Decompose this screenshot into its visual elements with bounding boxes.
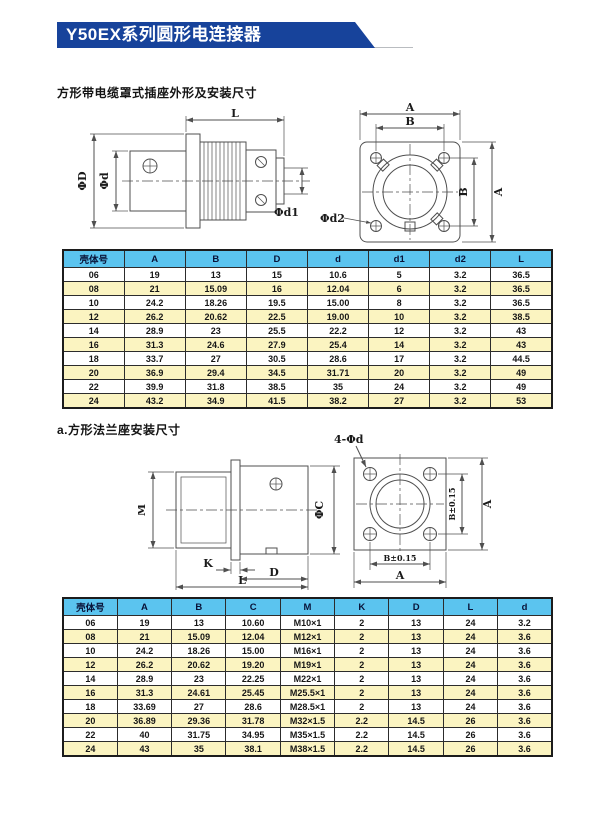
- table-cell: 33.69: [117, 700, 171, 714]
- table-cell: 08: [63, 630, 117, 644]
- table-cell: 3.6: [498, 644, 552, 658]
- table-cell: 2.2: [335, 728, 389, 742]
- table-cell: 3.6: [498, 728, 552, 742]
- table-cell: 3.2: [498, 616, 552, 630]
- table-cell: 44.5: [491, 352, 552, 366]
- dim-label-L: L: [231, 107, 239, 120]
- column-header: d2: [430, 250, 491, 268]
- table-cell: 6: [369, 282, 430, 296]
- table-cell: 36.5: [491, 268, 552, 282]
- table-row: 2443.234.941.538.2273.253: [63, 394, 552, 409]
- table-row: 06191310.60M10×1213243.2: [63, 616, 552, 630]
- page-title: Y50EX系列圆形电连接器: [66, 25, 261, 44]
- table-cell: 24.2: [117, 644, 171, 658]
- table-cell: 24.61: [172, 686, 226, 700]
- table-cell: 13: [389, 630, 443, 644]
- dim-label-A-right: A: [492, 187, 505, 197]
- table-cell: M35×1.5: [280, 728, 334, 742]
- table-cell: 28.6: [226, 700, 280, 714]
- table-cell: M19×1: [280, 658, 334, 672]
- table-cell: 27: [172, 700, 226, 714]
- table-cell: 33.7: [124, 352, 185, 366]
- receptacle-body-outline: [166, 460, 320, 560]
- table-cell: 24: [443, 672, 497, 686]
- table-cell: 16: [63, 686, 117, 700]
- column-header: 壳体号: [63, 598, 117, 616]
- table-cell: M32×1.5: [280, 714, 334, 728]
- table-cell: 14: [369, 338, 430, 352]
- table-cell: 3.6: [498, 658, 552, 672]
- column-header: L: [491, 250, 552, 268]
- table-cell: 26.2: [117, 658, 171, 672]
- table-cell: 36.9: [124, 366, 185, 380]
- table-cell: 36.5: [491, 296, 552, 310]
- flange-dimensions: A B B A Φd2: [320, 101, 505, 242]
- column-header: M: [280, 598, 334, 616]
- table-cell: 49: [491, 366, 552, 380]
- dim-label-B-top: B: [405, 115, 414, 128]
- table-cell: 36.5: [491, 282, 552, 296]
- table-cell: 26.2: [124, 310, 185, 324]
- table-cell: 24: [63, 742, 117, 757]
- table-cell: M16×1: [280, 644, 334, 658]
- table-cell: 3.2: [430, 268, 491, 282]
- diagram-plug-side-view: L ΦD Φd Φd1: [78, 106, 313, 246]
- table-cell: 2.2: [335, 714, 389, 728]
- table-header-row: 壳体号ABCMKDLd: [63, 598, 552, 616]
- section1-heading: 方形带电缆罩式插座外形及安装尺寸: [57, 84, 257, 101]
- table-cell: 39.9: [124, 380, 185, 394]
- table-cell: 3.2: [430, 282, 491, 296]
- table-cell: 27: [369, 394, 430, 409]
- table-cell: 31.75: [172, 728, 226, 742]
- table-cell: 34.5: [246, 366, 307, 380]
- table-cell: 28.9: [124, 324, 185, 338]
- table-cell: 26: [443, 728, 497, 742]
- table-row: 2239.931.838.535243.249: [63, 380, 552, 394]
- table-cell: 21: [124, 282, 185, 296]
- column-header: A: [117, 598, 171, 616]
- table-cell: 15.00: [308, 296, 369, 310]
- table-cell: 15.09: [185, 282, 246, 296]
- column-header: d: [308, 250, 369, 268]
- dim-label-B-bottom: B±0.15: [384, 553, 417, 563]
- table-cell: 12: [63, 658, 117, 672]
- table-cell: 3.6: [498, 686, 552, 700]
- table-cell: 34.9: [185, 394, 246, 409]
- table-cell: 24: [443, 616, 497, 630]
- table-cell: 25.45: [226, 686, 280, 700]
- table-cell: 06: [63, 616, 117, 630]
- dim-label-L: L: [238, 574, 246, 587]
- table-cell: 08: [63, 282, 124, 296]
- table-row: 1024.218.2619.515.0083.236.5: [63, 296, 552, 310]
- table-cell: 30.5: [246, 352, 307, 366]
- table-cell: M22×1: [280, 672, 334, 686]
- table-cell: 40: [117, 728, 171, 742]
- table-cell: 13: [389, 672, 443, 686]
- table-row: 082115.091612.0463.236.5: [63, 282, 552, 296]
- table-cell: 38.5: [246, 380, 307, 394]
- column-header: C: [226, 598, 280, 616]
- column-header: D: [389, 598, 443, 616]
- table-cell: M12×1: [280, 630, 334, 644]
- table-cell: 16: [63, 338, 124, 352]
- dim-label-A-bottom: A: [395, 569, 405, 582]
- table-cell: 14: [63, 324, 124, 338]
- table-cell: 22.25: [226, 672, 280, 686]
- table-cell: 21: [117, 630, 171, 644]
- table-cell: 10: [63, 644, 117, 658]
- table-cell: 38.2: [308, 394, 369, 409]
- table-cell: 24: [63, 394, 124, 409]
- table-cell: 18.26: [185, 296, 246, 310]
- table-cell: 16: [246, 282, 307, 296]
- dim-label-M: M: [138, 504, 148, 516]
- table-cell: 24: [443, 686, 497, 700]
- table-cell: 38.1: [226, 742, 280, 757]
- table-cell: 13: [389, 658, 443, 672]
- table-row: 1226.220.6219.20M19×1213243.6: [63, 658, 552, 672]
- table-cell: 24.2: [124, 296, 185, 310]
- diagram-plug-front-view: A B B A Φd2: [318, 98, 518, 250]
- table-row: 1631.324.627.925.4143.243: [63, 338, 552, 352]
- table-row: 0619131510.653.236.5: [63, 268, 552, 282]
- table-cell: 22.2: [308, 324, 369, 338]
- diagram-receptacle-front-view: 4-Φd B±0.15 A B±0.15 A: [332, 430, 532, 595]
- table-cell: 2: [335, 644, 389, 658]
- table-row: 224031.7534.95M35×1.52.214.5263.6: [63, 728, 552, 742]
- table-cell: 13: [389, 616, 443, 630]
- table-cell: 15: [246, 268, 307, 282]
- table-cell: 10: [63, 296, 124, 310]
- table-cell: 14.5: [389, 742, 443, 757]
- table-cell: 14.5: [389, 728, 443, 742]
- table-cell: 43: [491, 338, 552, 352]
- table-cell: 8: [369, 296, 430, 310]
- table-cell: 36.89: [117, 714, 171, 728]
- column-header: B: [172, 598, 226, 616]
- table-cell: 12.04: [226, 630, 280, 644]
- table-cell: 41.5: [246, 394, 307, 409]
- flange-dimension-table: 壳体号ABCMKDLd06191310.60M10×1213243.208211…: [62, 597, 553, 757]
- table-cell: M10×1: [280, 616, 334, 630]
- table-cell: 2: [335, 672, 389, 686]
- table-cell: 18: [63, 700, 117, 714]
- dim-label-4-phi-d: 4-Φd: [334, 433, 364, 446]
- table-cell: 19.00: [308, 310, 369, 324]
- table-cell: 26: [443, 742, 497, 757]
- table-cell: 13: [389, 644, 443, 658]
- table-cell: 43.2: [124, 394, 185, 409]
- table-cell: 10: [369, 310, 430, 324]
- table-cell: 24: [369, 380, 430, 394]
- table-cell: 38.5: [491, 310, 552, 324]
- table-cell: 31.3: [124, 338, 185, 352]
- table-row: 1428.92325.522.2123.243: [63, 324, 552, 338]
- table-cell: M38×1.5: [280, 742, 334, 757]
- table-cell: 10.6: [308, 268, 369, 282]
- dim-label-phi-C: ΦC: [313, 501, 326, 520]
- table-cell: 22: [63, 380, 124, 394]
- table-row: 1428.92322.25M22×1213243.6: [63, 672, 552, 686]
- table-cell: 22: [63, 728, 117, 742]
- table-cell: 24: [443, 658, 497, 672]
- table-cell: 3.2: [430, 366, 491, 380]
- table-cell: 3.2: [430, 338, 491, 352]
- column-header: A: [124, 250, 185, 268]
- table-cell: 3.2: [430, 324, 491, 338]
- plug-dimension-table: 壳体号ABDdd1d2L0619131510.653.236.5082115.0…: [62, 249, 553, 409]
- table-cell: 2.2: [335, 742, 389, 757]
- table-cell: 06: [63, 268, 124, 282]
- table-cell: 20.62: [172, 658, 226, 672]
- section2-heading: a.方形法兰座安装尺寸: [57, 421, 181, 438]
- table-cell: M28.5×1: [280, 700, 334, 714]
- table-row: 082115.0912.04M12×1213243.6: [63, 630, 552, 644]
- table-cell: 13: [185, 268, 246, 282]
- column-header: d1: [369, 250, 430, 268]
- dim-label-phi-D: ΦD: [78, 171, 89, 191]
- receptacle-flange-dimensions: 4-Φd B±0.15 A B±0.15 A: [334, 433, 494, 588]
- table-cell: 15.00: [226, 644, 280, 658]
- column-header: K: [335, 598, 389, 616]
- table-cell: 23: [185, 324, 246, 338]
- table-cell: 35: [308, 380, 369, 394]
- table-cell: 19.20: [226, 658, 280, 672]
- table-cell: 3.2: [430, 380, 491, 394]
- table-cell: 31.8: [185, 380, 246, 394]
- table-cell: 3.2: [430, 394, 491, 409]
- table-cell: 20: [369, 366, 430, 380]
- table-cell: 18: [63, 352, 124, 366]
- table-cell: 2: [335, 700, 389, 714]
- dim-label-phi-d: Φd: [98, 172, 111, 190]
- table-cell: 13: [389, 700, 443, 714]
- table-cell: 2: [335, 630, 389, 644]
- table-cell: 49: [491, 380, 552, 394]
- table-cell: 13: [172, 616, 226, 630]
- table-cell: 12.04: [308, 282, 369, 296]
- table-cell: 22.5: [246, 310, 307, 324]
- table-cell: 24: [443, 644, 497, 658]
- table-cell: 12: [63, 310, 124, 324]
- table-cell: 31.71: [308, 366, 369, 380]
- table-cell: 25.4: [308, 338, 369, 352]
- table-cell: 27.9: [246, 338, 307, 352]
- table-cell: 3.6: [498, 630, 552, 644]
- catalog-page: Y50EX系列圆形电连接器 方形带电缆罩式插座外形及安装尺寸: [0, 0, 613, 825]
- column-header: B: [185, 250, 246, 268]
- table-row: 1631.324.6125.45M25.5×1213243.6: [63, 686, 552, 700]
- table-row: 2036.929.434.531.71203.249: [63, 366, 552, 380]
- dim-label-A-top: A: [405, 101, 415, 114]
- column-header: d: [498, 598, 552, 616]
- table-cell: 5: [369, 268, 430, 282]
- table-cell: 3.6: [498, 742, 552, 757]
- page-title-banner: Y50EX系列圆形电连接器: [57, 22, 375, 48]
- table-cell: 27: [185, 352, 246, 366]
- table-cell: 17: [369, 352, 430, 366]
- table-cell: 12: [369, 324, 430, 338]
- table-cell: 23: [172, 672, 226, 686]
- plug-dimensions: L ΦD Φd Φd1: [78, 107, 308, 228]
- table-cell: 20.62: [185, 310, 246, 324]
- table-row: 1024.218.2615.00M16×1213243.6: [63, 644, 552, 658]
- table-cell: 24: [443, 630, 497, 644]
- table-cell: 14: [63, 672, 117, 686]
- table-cell: 31.78: [226, 714, 280, 728]
- table-row: 1226.220.6222.519.00103.238.5: [63, 310, 552, 324]
- table-cell: 29.4: [185, 366, 246, 380]
- table-row: 2036.8929.3631.78M32×1.52.214.5263.6: [63, 714, 552, 728]
- table-cell: 28.6: [308, 352, 369, 366]
- table-cell: 10.60: [226, 616, 280, 630]
- table-row: 1833.72730.528.6173.244.5: [63, 352, 552, 366]
- table-cell: 3.6: [498, 672, 552, 686]
- table-cell: 13: [389, 686, 443, 700]
- column-header: D: [246, 250, 307, 268]
- table-cell: 43: [491, 324, 552, 338]
- dim-label-K: K: [203, 557, 213, 570]
- table-cell: 3.6: [498, 700, 552, 714]
- table-row: 1833.692728.6M28.5×1213243.6: [63, 700, 552, 714]
- table-cell: 24: [443, 700, 497, 714]
- table-cell: 34.95: [226, 728, 280, 742]
- table-cell: 24.6: [185, 338, 246, 352]
- dim-label-B-right: B: [457, 187, 470, 196]
- dim-label-B-right: B±0.15: [447, 488, 457, 521]
- table-cell: 26: [443, 714, 497, 728]
- dim-label-D: D: [269, 566, 279, 579]
- table-cell: 19.5: [246, 296, 307, 310]
- table-cell: 43: [117, 742, 171, 757]
- table-cell: 53: [491, 394, 552, 409]
- table-cell: 15.09: [172, 630, 226, 644]
- table-cell: 18.26: [172, 644, 226, 658]
- table-cell: 2: [335, 686, 389, 700]
- table-cell: 19: [124, 268, 185, 282]
- table-cell: 3.2: [430, 296, 491, 310]
- diagram-receptacle-side-view: M ΦC K D L: [138, 438, 363, 590]
- dim-label-A-right: A: [481, 499, 494, 509]
- column-header: 壳体号: [63, 250, 124, 268]
- table-cell: 29.36: [172, 714, 226, 728]
- table-cell: 20: [63, 714, 117, 728]
- receptacle-flange-outline: [354, 454, 446, 554]
- flange-outline: [360, 142, 460, 242]
- table-header-row: 壳体号ABDdd1d2L: [63, 250, 552, 268]
- dim-label-phi-d2: Φd2: [320, 212, 345, 225]
- table-cell: 3.2: [430, 310, 491, 324]
- table-cell: 20: [63, 366, 124, 380]
- table-cell: M25.5×1: [280, 686, 334, 700]
- table-cell: 14.5: [389, 714, 443, 728]
- table-cell: 25.5: [246, 324, 307, 338]
- table-cell: 2: [335, 658, 389, 672]
- table-cell: 3.2: [430, 352, 491, 366]
- table-cell: 19: [117, 616, 171, 630]
- receptacle-dimensions: M ΦC K D L: [138, 466, 340, 590]
- table-cell: 31.3: [117, 686, 171, 700]
- table-cell: 28.9: [117, 672, 171, 686]
- table-cell: 3.6: [498, 714, 552, 728]
- dim-label-phi-d1: Φd1: [274, 206, 299, 219]
- table-cell: 35: [172, 742, 226, 757]
- table-cell: 2: [335, 616, 389, 630]
- column-header: L: [443, 598, 497, 616]
- table-row: 24433538.1M38×1.52.214.5263.6: [63, 742, 552, 757]
